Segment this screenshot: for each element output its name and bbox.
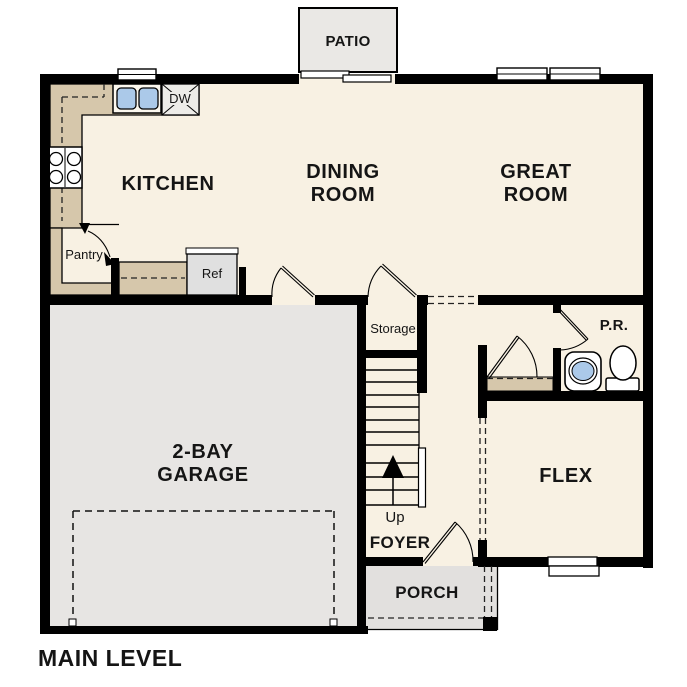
- pantry-label: Pantry: [65, 247, 103, 262]
- pedestal-sink: [565, 352, 601, 391]
- great-room-label-line1: GREAT: [500, 161, 572, 183]
- flex-label: FLEX: [539, 465, 593, 487]
- patio-label: PATIO: [325, 33, 370, 50]
- floor-plan-page: PATIO DW Ref: [0, 0, 687, 687]
- dishwasher-label: DW: [169, 91, 191, 106]
- floor-plan-svg: PATIO DW Ref: [0, 0, 687, 687]
- stair-handrail: [419, 448, 426, 507]
- garage-label-line2: GARAGE: [157, 464, 248, 486]
- great-room-label-line2: ROOM: [504, 184, 569, 206]
- porch-label: PORCH: [395, 583, 458, 602]
- plan-title: MAIN LEVEL: [38, 645, 182, 671]
- great-room-opening: [428, 295, 478, 305]
- dishwasher: DW: [162, 84, 199, 115]
- coat-closet: [487, 377, 553, 391]
- storage-label: Storage: [370, 321, 416, 336]
- porch-post: [483, 617, 497, 631]
- stairs-up-label: Up: [385, 509, 404, 526]
- great-room-window-right: [550, 68, 600, 80]
- kitchen-sink: [113, 84, 161, 113]
- kitchen-label: KITCHEN: [121, 173, 214, 195]
- dining-room-label-line1: DINING: [306, 161, 380, 183]
- flex-window: [548, 557, 599, 576]
- garage-label-line1: 2-BAY: [172, 441, 233, 463]
- foyer-label: FOYER: [370, 533, 431, 552]
- powder-room-label: P.R.: [600, 317, 628, 334]
- refrigerator: Ref: [186, 248, 238, 295]
- kitchen-window: [118, 69, 156, 80]
- dining-room-label-line2: ROOM: [311, 184, 376, 206]
- great-room-window-left: [497, 68, 547, 80]
- refrigerator-label: Ref: [202, 266, 223, 281]
- patio-area: PATIO: [299, 8, 397, 72]
